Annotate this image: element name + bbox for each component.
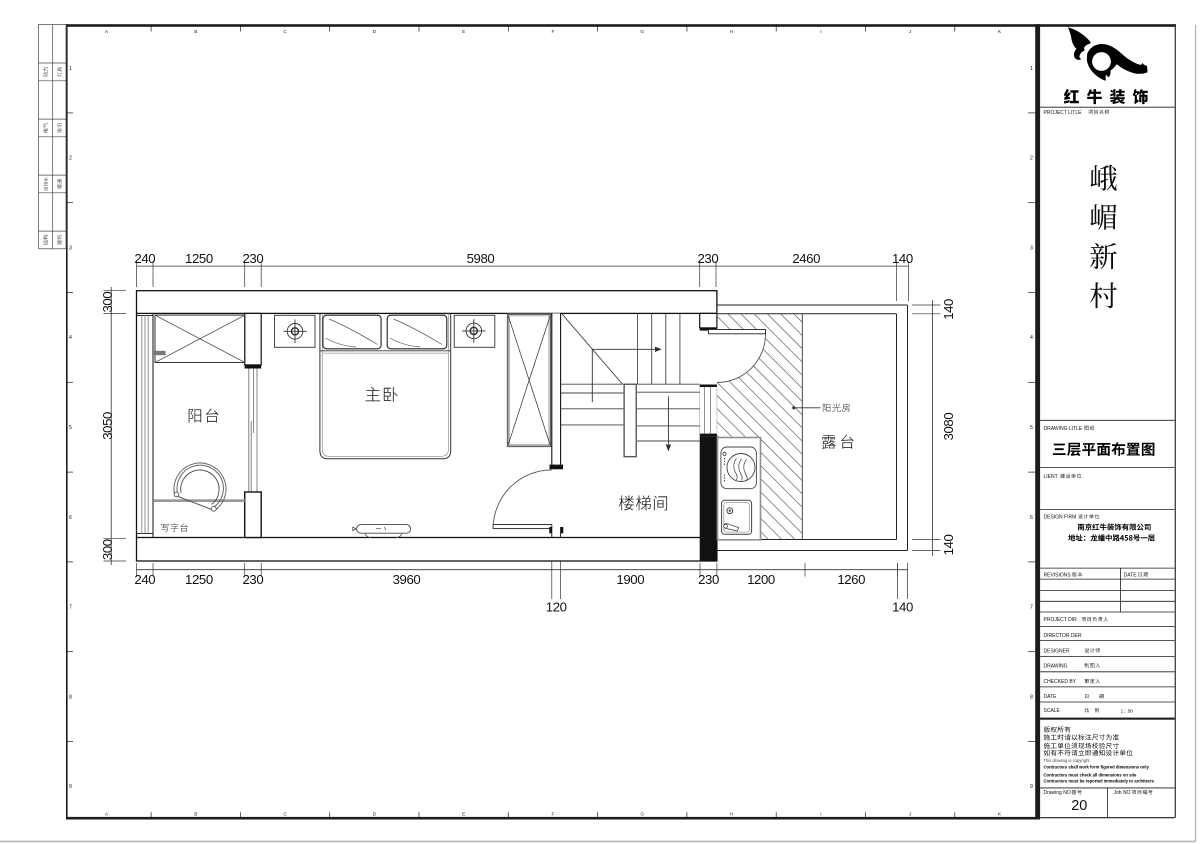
svg-text:CHECKED BY: CHECKED BY bbox=[1044, 679, 1077, 685]
svg-text:4: 4 bbox=[69, 335, 72, 341]
svg-text:2: 2 bbox=[1030, 156, 1033, 162]
svg-text:3960: 3960 bbox=[393, 572, 421, 587]
svg-text:DESIGNER: DESIGNER bbox=[1044, 648, 1071, 654]
svg-text:B: B bbox=[194, 812, 197, 818]
svg-text:PROJECT DIR: PROJECT DIR bbox=[1044, 617, 1078, 623]
svg-text:D: D bbox=[373, 812, 377, 818]
svg-text:9: 9 bbox=[69, 784, 72, 790]
svg-text:1900: 1900 bbox=[616, 572, 644, 587]
svg-text:H: H bbox=[730, 29, 734, 35]
svg-text:3: 3 bbox=[69, 245, 72, 251]
svg-text:9: 9 bbox=[1030, 784, 1033, 790]
svg-text:1200: 1200 bbox=[747, 572, 775, 587]
svg-text:240: 240 bbox=[134, 251, 155, 266]
svg-text:5: 5 bbox=[69, 425, 72, 431]
svg-text:1: 1 bbox=[69, 66, 72, 72]
svg-text:DRAWING LITLE: DRAWING LITLE bbox=[1044, 426, 1083, 432]
svg-text:G: G bbox=[640, 29, 644, 35]
svg-text:Job NO: Job NO bbox=[1114, 790, 1131, 796]
svg-text:20: 20 bbox=[1071, 798, 1087, 814]
svg-text:DRAWING: DRAWING bbox=[1044, 663, 1068, 669]
svg-text:230: 230 bbox=[242, 251, 263, 266]
svg-text:DATE: DATE bbox=[1044, 694, 1058, 700]
svg-text:I: I bbox=[820, 29, 821, 35]
svg-text:Drawing NO: Drawing NO bbox=[1044, 790, 1071, 796]
svg-text:300: 300 bbox=[100, 539, 115, 560]
svg-text:4: 4 bbox=[1030, 335, 1033, 341]
svg-text:6: 6 bbox=[1030, 515, 1033, 521]
svg-text:120: 120 bbox=[546, 600, 567, 615]
svg-text:I: I bbox=[820, 812, 821, 818]
svg-text:230: 230 bbox=[698, 572, 719, 587]
svg-text:8: 8 bbox=[69, 694, 72, 700]
svg-text:3050: 3050 bbox=[100, 412, 115, 440]
svg-text:2460: 2460 bbox=[792, 251, 820, 266]
svg-text:5980: 5980 bbox=[467, 251, 495, 266]
svg-text:D: D bbox=[373, 29, 377, 35]
svg-text:3: 3 bbox=[1030, 245, 1033, 251]
svg-text:300: 300 bbox=[100, 292, 115, 313]
svg-text:F: F bbox=[552, 29, 555, 35]
svg-text:230: 230 bbox=[242, 572, 263, 587]
svg-text:1: 1 bbox=[1030, 66, 1033, 72]
svg-text:1：50: 1：50 bbox=[1121, 708, 1134, 713]
svg-text:140: 140 bbox=[941, 299, 956, 320]
svg-text:C: C bbox=[283, 29, 287, 35]
svg-text:7: 7 bbox=[69, 605, 72, 611]
svg-text:Contractors must check all dim: Contractors must check all dimensions on… bbox=[1044, 772, 1138, 777]
svg-text:DATE: DATE bbox=[1124, 572, 1138, 578]
svg-text:7: 7 bbox=[1030, 605, 1033, 611]
svg-text:3080: 3080 bbox=[941, 413, 956, 441]
svg-text:140: 140 bbox=[941, 535, 956, 556]
svg-text:LIENT: LIENT bbox=[1044, 474, 1058, 480]
svg-text:E: E bbox=[462, 29, 465, 35]
svg-text:1250: 1250 bbox=[185, 251, 213, 266]
svg-text:230: 230 bbox=[697, 251, 718, 266]
svg-text:Contractors shall work form fi: Contractors shall work form figured dime… bbox=[1044, 765, 1150, 770]
svg-text:E: E bbox=[462, 812, 465, 818]
svg-text:SCALE: SCALE bbox=[1044, 708, 1061, 714]
svg-text:DIRECTOR DER: DIRECTOR DER bbox=[1044, 633, 1082, 639]
svg-text:Contractors must be reported i: Contractors must be reported immediately… bbox=[1044, 778, 1155, 783]
svg-text:1260: 1260 bbox=[837, 572, 865, 587]
svg-text:PROJECT LITLE: PROJECT LITLE bbox=[1044, 110, 1083, 116]
svg-text:5: 5 bbox=[1030, 425, 1033, 431]
svg-text:1250: 1250 bbox=[185, 572, 213, 587]
svg-text:240: 240 bbox=[134, 572, 155, 587]
svg-text:REVISIONS: REVISIONS bbox=[1044, 572, 1072, 578]
svg-text:G: G bbox=[640, 812, 644, 818]
svg-text:F: F bbox=[552, 812, 555, 818]
svg-text:2: 2 bbox=[69, 156, 72, 162]
svg-text:140: 140 bbox=[892, 251, 913, 266]
svg-text:C: C bbox=[283, 812, 287, 818]
svg-text:This drawing is copyright: This drawing is copyright bbox=[1044, 758, 1091, 763]
svg-text:B: B bbox=[194, 29, 197, 35]
svg-text:6: 6 bbox=[69, 515, 72, 521]
svg-text:DESIGN FIRM: DESIGN FIRM bbox=[1044, 514, 1077, 520]
svg-text:H: H bbox=[730, 812, 734, 818]
svg-text:140: 140 bbox=[892, 600, 913, 615]
svg-text:8: 8 bbox=[1030, 694, 1033, 700]
